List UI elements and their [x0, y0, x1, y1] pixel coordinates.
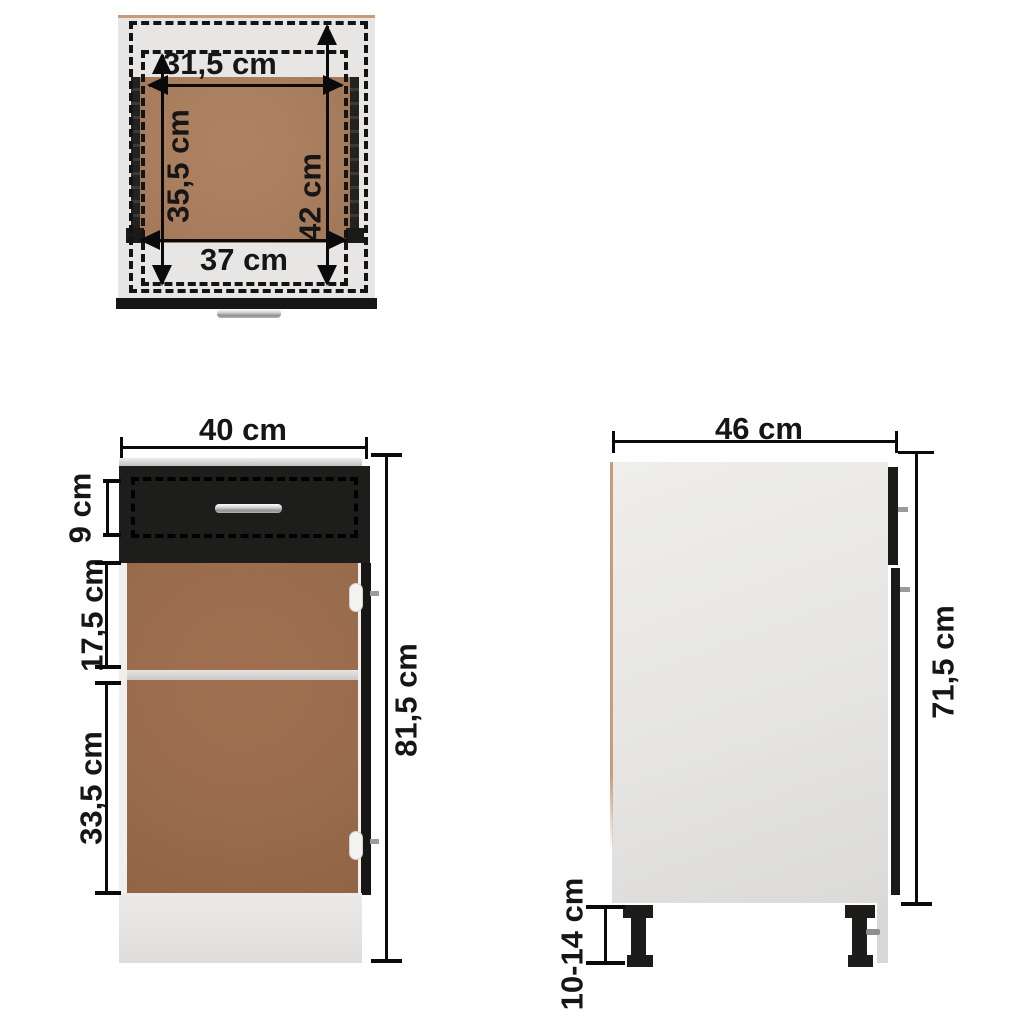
plinth-front: [119, 893, 362, 963]
adjustable-leg-back-plate: [623, 905, 653, 918]
dim-arrow-drawer-inner-width: [149, 84, 342, 87]
dim-line-upper-compartment: [105, 562, 108, 669]
dim-line-body-height: [915, 451, 918, 906]
adjustable-leg-front-foot: [848, 955, 873, 967]
dim-tick: [103, 479, 121, 483]
dim-label-upper-compartment: 17,5 cm: [77, 558, 108, 672]
dim-tick: [586, 905, 625, 909]
dim-line-drawer-front-height: [106, 480, 109, 536]
dim-label-total-height: 81,5 cm: [391, 643, 422, 757]
dim-tick: [95, 681, 121, 685]
dim-arrow-drawer-inner-depth: [161, 55, 164, 284]
dim-tick: [95, 665, 121, 669]
dim-line-cabinet-depth: [612, 440, 898, 443]
drawer-handle-front-view: [215, 504, 282, 513]
leg-adjuster-screw: [866, 929, 880, 935]
cabinet-interior-back: [127, 563, 358, 893]
dim-label-drawer-inner-depth: 35,5 cm: [163, 109, 194, 223]
drawer-front-edge-side: [888, 467, 898, 565]
door-hinge-top: [349, 583, 363, 612]
dim-label-body-height: 71,5 cm: [928, 605, 959, 719]
door-handle-pin-bottom: [370, 839, 379, 844]
drawer-front-top-edge: [116, 298, 377, 309]
adjustable-leg-back-foot: [627, 955, 653, 967]
dim-label-lower-compartment: 33,5 cm: [76, 731, 107, 845]
door-hinge-bottom: [349, 831, 363, 860]
dim-tick: [103, 533, 121, 537]
dim-label-drawer-inner-width: 31,5 cm: [163, 48, 277, 79]
product-dimension-diagram: 31,5 cm 35,5 cm 42 cm 37 cm 40 cm 9 cm: [0, 0, 1024, 1024]
dim-tick: [371, 453, 402, 457]
dim-line-cabinet-width: [120, 446, 368, 449]
dim-line-total-height: [385, 455, 388, 963]
dim-label-drawer-total-depth: 42 cm: [295, 153, 326, 241]
dim-tick: [95, 561, 121, 565]
dim-line-lower-compartment: [105, 682, 108, 895]
left-side-panel-edge: [119, 563, 127, 893]
adjustable-leg-back-stem: [631, 918, 646, 955]
dim-label-drawer-front-height: 9 cm: [65, 473, 96, 544]
dim-line-leg-height: [604, 907, 607, 965]
dim-tick: [586, 961, 625, 965]
dim-tick: [901, 902, 932, 906]
door-handle-side-pin: [900, 587, 910, 592]
dim-label-leg-height: 10-14 cm: [557, 878, 588, 1011]
door-edge-side: [891, 568, 900, 895]
adjustable-leg-front-plate: [845, 905, 875, 918]
dim-tick: [371, 959, 402, 963]
dim-tick: [95, 891, 121, 895]
shelf-front-edge: [127, 670, 358, 680]
side-panel: [612, 462, 888, 903]
drawer-handle-top-view: [217, 309, 281, 318]
worktop-edge-strip: [119, 458, 362, 466]
adjustable-leg-front-stem: [852, 918, 867, 955]
dim-label-drawer-outer-width: 37 cm: [200, 244, 288, 275]
dim-label-cabinet-width: 40 cm: [199, 414, 287, 445]
drawer-handle-side-pin: [898, 507, 908, 512]
side-panel-front-edge-tan: [610, 462, 613, 852]
door-handle-pin-top: [370, 591, 379, 596]
